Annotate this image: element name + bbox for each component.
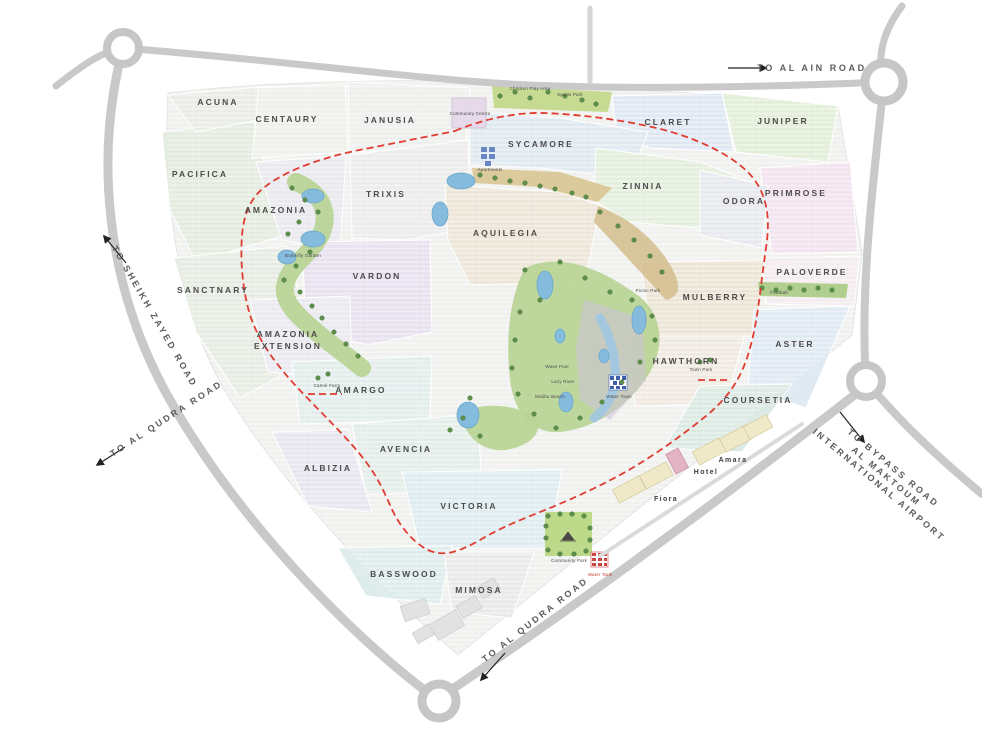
tree-icon [523, 181, 528, 186]
tree-icon [320, 316, 325, 321]
tree-icon [316, 210, 321, 215]
tree-icon [830, 288, 835, 293]
tree-icon [508, 179, 513, 184]
tree-icon [554, 426, 559, 431]
tree-icon [553, 187, 558, 192]
tree-icon [660, 270, 665, 275]
tree-icon [290, 186, 295, 191]
tree-icon [356, 354, 361, 359]
tree-icon [448, 428, 453, 433]
amenity-label: Camel Farm [314, 383, 341, 388]
amenity-label: Malibu Beach [535, 394, 565, 399]
tree-icon [583, 276, 588, 281]
cluster-label-juniper: JUNIPER [757, 116, 809, 126]
cluster-label-aquilegia: AQUILEGIA [473, 228, 539, 238]
cluster-label-albizia: ALBIZIA [304, 463, 352, 473]
tree-icon [630, 298, 635, 303]
tree-icon [344, 342, 349, 347]
amenity-label: Community Centre [450, 111, 491, 116]
cluster-label-sanctnary: SANCTNARY [177, 285, 249, 295]
tree-icon [478, 173, 483, 178]
tree-icon [648, 254, 653, 259]
amenity-label: Apartments [477, 167, 503, 172]
tree-icon [310, 304, 315, 309]
cluster-label-hawthorn: HAWTHORN [653, 356, 720, 366]
tree-icon [558, 260, 563, 265]
tree-icon [638, 360, 643, 365]
tree-icon [650, 314, 655, 319]
tree-icon [578, 416, 583, 421]
tree-icon [816, 286, 821, 291]
tree-icon [510, 366, 515, 371]
cluster-label-paloverde: PALOVERDE [776, 267, 847, 277]
tree-icon [558, 552, 563, 557]
cluster-label-avencia: AVENCIA [380, 444, 432, 454]
tree-icon [516, 392, 521, 397]
cluster-label-mimosa: MIMOSA [455, 585, 503, 595]
tree-icon [802, 288, 807, 293]
tree-icon [600, 400, 605, 405]
tree-icon [332, 330, 337, 335]
tree-icon [294, 264, 299, 269]
tree-icon [478, 434, 483, 439]
amenity-label: Butterfly Garden [285, 253, 321, 258]
road-label-al-ain: TO AL AIN ROAD [757, 63, 866, 73]
tree-icon [282, 278, 287, 283]
tree-icon [598, 210, 603, 215]
tree-icon [608, 290, 613, 295]
tree-icon [620, 380, 625, 385]
amenity-label: Children Play Area [510, 86, 551, 91]
cluster-label-victoria: VICTORIA [440, 501, 497, 511]
tree-icon [594, 102, 599, 107]
amenity-label-water-tank: Water Tank [588, 572, 613, 577]
cluster-label-odora: ODORA [723, 196, 765, 206]
tree-icon [532, 412, 537, 417]
cluster-label-acuna: ACUNA [197, 97, 238, 107]
cluster-label-claret: CLARET [644, 117, 691, 127]
tree-icon [298, 290, 303, 295]
tree-icon [538, 184, 543, 189]
cluster-label-amazonia: AMAZONIA [245, 205, 308, 215]
tree-icon [297, 220, 302, 225]
cluster-label-amazonia-extension: AMAZONIA [257, 329, 320, 339]
amenity-label: Picnic Park [636, 288, 661, 293]
tree-icon [588, 526, 593, 531]
tree-icon [584, 195, 589, 200]
cluster-label-pacifica: PACIFICA [172, 169, 228, 179]
cluster-label-janusia: JANUSIA [364, 115, 416, 125]
tree-icon [788, 286, 793, 291]
cluster-label-primrose: PRIMROSE [765, 188, 827, 198]
tree-icon [468, 396, 473, 401]
tree-icon [588, 538, 593, 543]
amenity-label: Sports Park [557, 92, 583, 97]
tree-icon [584, 549, 589, 554]
tree-icon [286, 232, 291, 237]
cluster-label-centaury: CENTAURY [255, 114, 318, 124]
cluster-label-amargo: AMARGO [335, 385, 386, 395]
amenity-label: Town Park [690, 367, 713, 372]
place-label-hotel: Hotel [694, 469, 719, 476]
tree-icon [523, 268, 528, 273]
cluster-label-coursetia: COURSETIA [724, 395, 793, 405]
cluster-label-zinnia: ZINNIA [623, 181, 664, 191]
tree-icon [316, 376, 321, 381]
tree-icon [570, 512, 575, 517]
tree-icon [582, 514, 587, 519]
map-canvas: ACUNA CENTAURY JANUSIA CLARET JUNIPER PA… [0, 0, 982, 748]
tree-icon [570, 191, 575, 196]
cluster-label-mulberry: MULBERRY [683, 292, 748, 302]
tree-icon [498, 94, 503, 99]
amenity-label: Lazy River [551, 379, 575, 384]
tree-icon [544, 524, 549, 529]
tree-icon [558, 512, 563, 517]
tree-icon [616, 224, 621, 229]
tree-icon [653, 338, 658, 343]
tree-icon [544, 536, 549, 541]
tree-icon [572, 552, 577, 557]
cluster-label-basswood: BASSWOOD [370, 569, 438, 579]
tree-icon [632, 238, 637, 243]
tree-icon [461, 416, 466, 421]
amenity-label: Water Town [606, 394, 632, 399]
place-label-amara: Amara [719, 457, 748, 464]
place-label-fiora: Fiora [654, 496, 678, 503]
cluster-label-aster: ASTER [775, 339, 814, 349]
tree-icon [493, 176, 498, 181]
road-label-bypass: TO BYPASS ROAD AL MAKTOUM INTERNATIONAL … [811, 410, 962, 544]
cluster-label-sycamore: SYCAMORE [508, 139, 574, 149]
tree-icon [528, 96, 533, 101]
tree-icon [518, 310, 523, 315]
tree-icon [513, 338, 518, 343]
cluster-label-amazonia-extension-2: EXTENSION [254, 341, 322, 351]
tree-icon [538, 298, 543, 303]
tree-icon [326, 372, 331, 377]
amenity-label: Community Park [551, 558, 588, 563]
cluster-label-vardon: VARDON [353, 271, 402, 281]
amenity-label: Football [770, 290, 788, 295]
masterplan-map: ACUNA CENTAURY JANUSIA CLARET JUNIPER PA… [0, 0, 982, 748]
tree-icon [546, 514, 551, 519]
cluster-label-trixis: TRIXIS [366, 189, 406, 199]
tree-icon [580, 98, 585, 103]
amenity-label: Wave Pool [545, 364, 568, 369]
tree-icon [546, 548, 551, 553]
tree-icon [303, 198, 308, 203]
